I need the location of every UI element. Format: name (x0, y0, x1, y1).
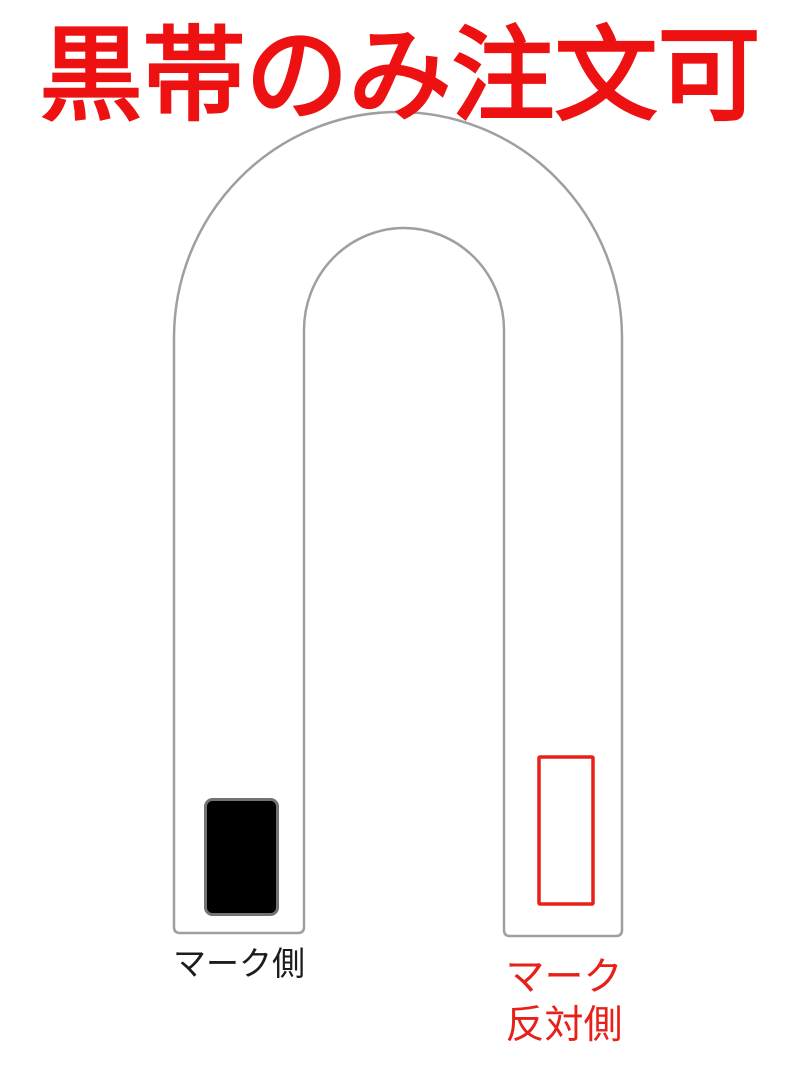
belt-order-note-image: 黒帯のみ注文可 マーク側 マーク反対側 (0, 0, 800, 1089)
belt-diagram (0, 0, 800, 1089)
label-mark-side: マーク側 (129, 946, 349, 982)
mark-patch-black (206, 800, 278, 915)
label-mark-opposite-side-line2: 反対側 (505, 1004, 622, 1047)
label-mark-opposite-side: マーク反対側 (454, 954, 674, 1050)
heading-black-belt-only-orderable: 黒帯のみ注文可 (0, 22, 800, 129)
label-mark-opposite-side-line1: マーク (505, 956, 622, 999)
